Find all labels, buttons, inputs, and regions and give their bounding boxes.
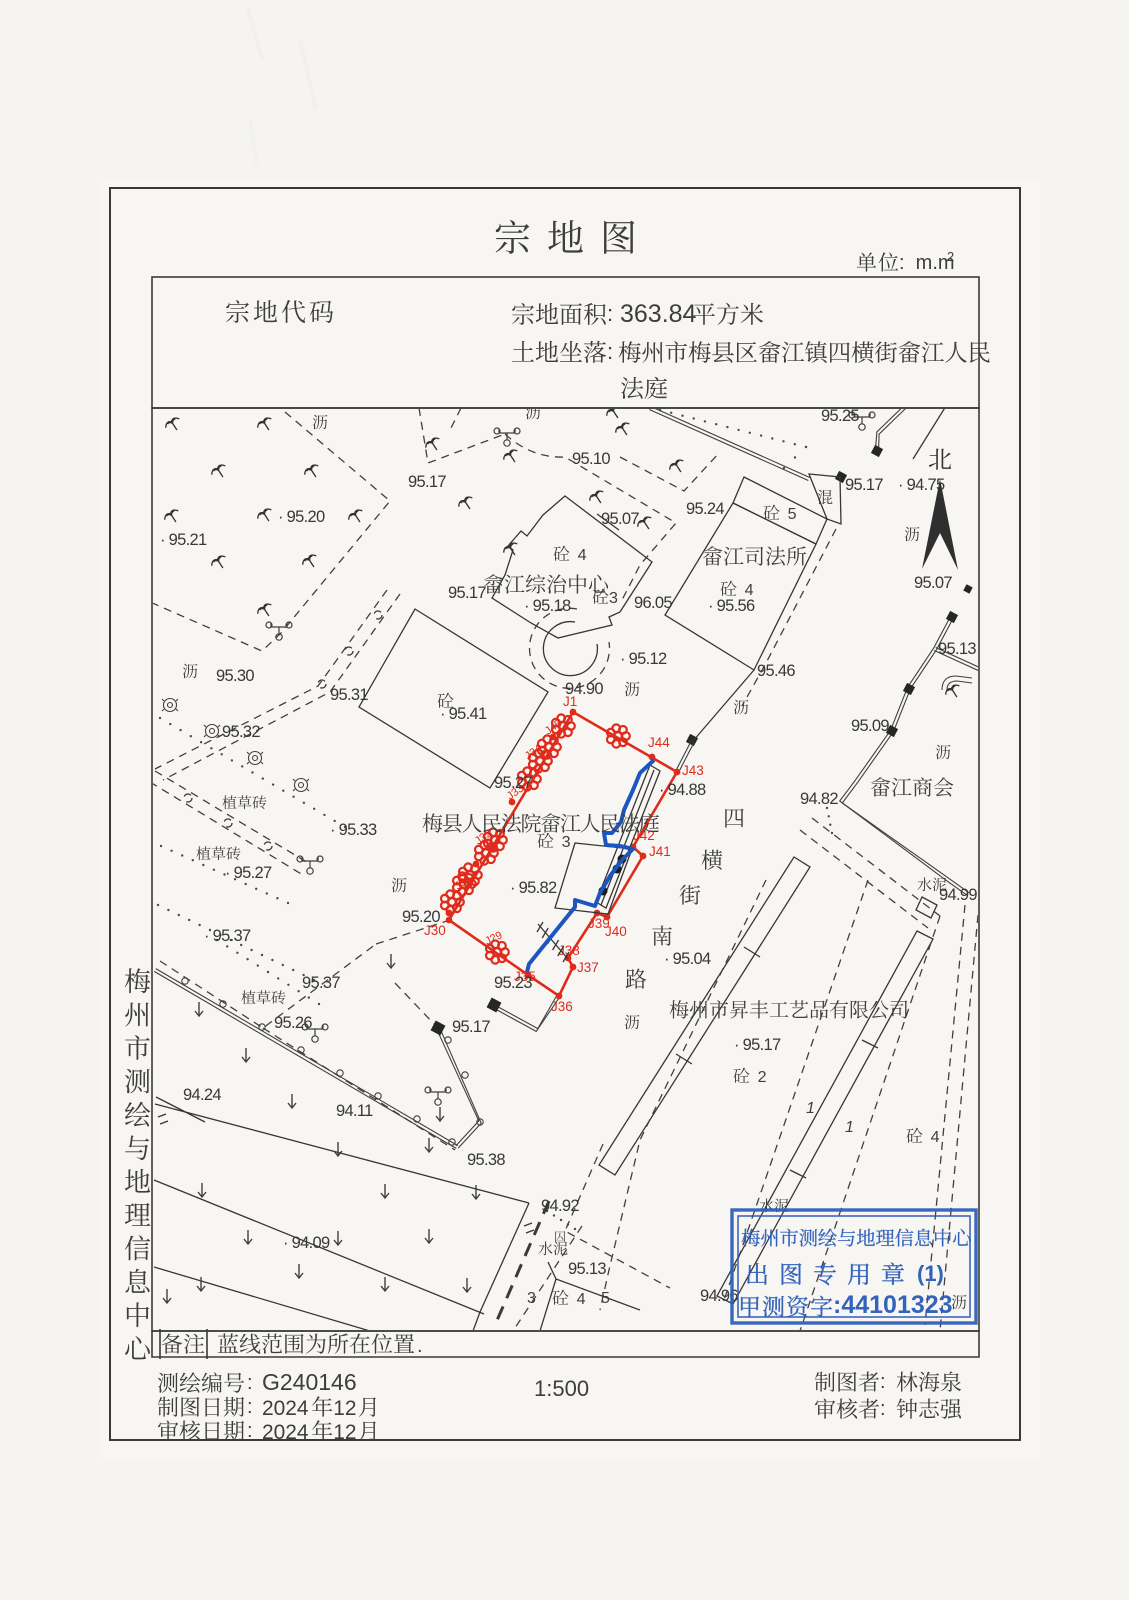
svg-text:5: 5 <box>788 505 797 523</box>
svg-text:J40: J40 <box>605 924 627 939</box>
svg-text:4: 4 <box>577 1290 586 1308</box>
svg-text:4: 4 <box>931 1128 940 1146</box>
svg-text:95.10: 95.10 <box>572 450 610 468</box>
svg-text:J36: J36 <box>551 999 573 1014</box>
svg-text:95.17: 95.17 <box>845 476 883 494</box>
svg-text:1:500: 1:500 <box>534 1376 589 1401</box>
svg-text:95.17: 95.17 <box>448 584 486 602</box>
svg-text:2024: 2024 <box>262 1421 308 1444</box>
svg-text::: : <box>247 1396 253 1418</box>
svg-text:· 95.21: · 95.21 <box>160 531 207 549</box>
svg-text:J43: J43 <box>682 763 704 778</box>
svg-text:(1): (1) <box>917 1261 944 1286</box>
svg-text:95.07: 95.07 <box>914 574 952 592</box>
svg-text:94.99: 94.99 <box>939 886 977 904</box>
svg-text:· 95.20: · 95.20 <box>278 508 325 526</box>
svg-text:95.13: 95.13 <box>938 640 976 658</box>
svg-text:95.46: 95.46 <box>757 662 795 680</box>
svg-text:94.82: 94.82 <box>800 790 838 808</box>
svg-text:· 95.27: · 95.27 <box>225 864 272 882</box>
svg-text:95.26: 95.26 <box>274 1014 312 1032</box>
svg-text:· 95.18: · 95.18 <box>524 597 571 615</box>
svg-text:95.09: 95.09 <box>851 717 889 735</box>
svg-text:95.17: 95.17 <box>408 473 446 491</box>
svg-text:· 95.04: · 95.04 <box>664 950 711 968</box>
svg-text:96.05: 96.05 <box>634 594 672 612</box>
svg-text:2: 2 <box>758 1068 767 1086</box>
svg-text:· 95.17: · 95.17 <box>734 1036 781 1054</box>
svg-text::: : <box>247 1372 253 1394</box>
svg-text:4: 4 <box>578 546 587 564</box>
svg-text:3: 3 <box>527 1290 536 1307</box>
svg-text:· 95.82: · 95.82 <box>510 879 557 897</box>
svg-text:94.11: 94.11 <box>336 1102 373 1120</box>
svg-text:· 95.41: · 95.41 <box>440 705 487 723</box>
svg-text:J37: J37 <box>577 960 599 975</box>
svg-text:1: 1 <box>806 1100 815 1117</box>
svg-text:95.27: 95.27 <box>494 774 532 792</box>
svg-text:363.84: 363.84 <box>620 300 697 328</box>
svg-text:94.92: 94.92 <box>541 1197 579 1215</box>
svg-text::: : <box>880 1398 886 1420</box>
svg-text:3: 3 <box>562 833 571 851</box>
svg-text:3: 3 <box>609 589 618 607</box>
svg-text:95.13: 95.13 <box>568 1260 606 1278</box>
svg-text:2: 2 <box>947 249 954 264</box>
svg-text:95.07: 95.07 <box>601 510 639 528</box>
svg-text::: : <box>607 301 613 326</box>
svg-text:.: . <box>417 1335 423 1357</box>
svg-text:95.24: 95.24 <box>686 500 724 518</box>
svg-text:2024: 2024 <box>262 1397 308 1420</box>
svg-text:· 94.09: · 94.09 <box>283 1234 330 1252</box>
svg-text:94.24: 94.24 <box>183 1086 221 1104</box>
svg-text:95.25: 95.25 <box>821 407 859 425</box>
svg-text:94.90: 94.90 <box>565 680 603 698</box>
svg-text:95.17: 95.17 <box>452 1018 490 1036</box>
svg-text:· 94.88: · 94.88 <box>659 781 706 799</box>
svg-text:95.32: 95.32 <box>222 723 260 741</box>
svg-text:95.30: 95.30 <box>216 667 254 685</box>
svg-text:· 95.12: · 95.12 <box>620 650 667 668</box>
svg-text:95.38: 95.38 <box>467 1151 505 1169</box>
svg-text::: : <box>247 1420 253 1442</box>
svg-text:12: 12 <box>333 1421 356 1444</box>
svg-text:95.37: 95.37 <box>302 974 340 992</box>
svg-text:12: 12 <box>333 1397 356 1420</box>
svg-text:· 95.37: · 95.37 <box>204 927 251 945</box>
svg-text:1: 1 <box>845 1119 854 1136</box>
svg-text:95.20: 95.20 <box>402 908 440 926</box>
svg-text::: : <box>880 1371 886 1393</box>
svg-text::44101323: :44101323 <box>833 1291 953 1319</box>
svg-text:95.23: 95.23 <box>494 974 532 992</box>
svg-text:· 95.56: · 95.56 <box>708 597 755 615</box>
svg-text:95.31: 95.31 <box>330 686 368 704</box>
svg-text:J41: J41 <box>649 844 671 859</box>
svg-text:· 95.33: · 95.33 <box>330 821 377 839</box>
svg-text::: : <box>607 339 613 364</box>
svg-text:G240146: G240146 <box>262 1369 357 1395</box>
svg-text:5: 5 <box>601 1290 610 1307</box>
svg-text:J44: J44 <box>648 735 670 750</box>
